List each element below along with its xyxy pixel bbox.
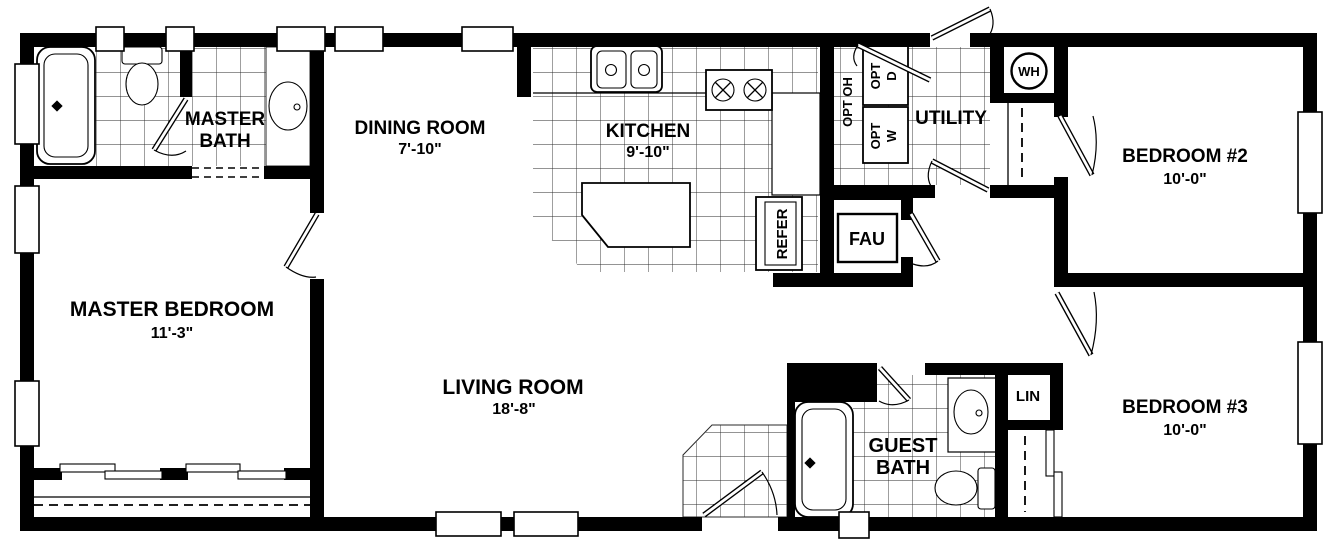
master-sink-icon (269, 82, 307, 130)
label-kitchen-dim: 9'-10" (626, 144, 669, 161)
label-master-bedroom-dim: 11'-3" (151, 325, 194, 342)
wall-kitchen-east (820, 33, 834, 287)
window-bedroom2 (1298, 112, 1322, 213)
guest-toilet-tank (978, 468, 995, 509)
guest-toilet-icon (935, 471, 977, 505)
wall-masterbedroom-east (310, 279, 324, 531)
guest-sink-icon (954, 390, 988, 434)
wall-bedroom2-west-b (1054, 177, 1068, 287)
label-master-bath-1: MASTER (185, 109, 266, 130)
label-fau: FAU (849, 229, 885, 249)
floor-plan-svg: MASTER BATH DINING ROOM 7'-10" KITCHEN 9… (0, 0, 1337, 550)
label-dining-room: DINING ROOM (355, 118, 486, 139)
window-bedroom3 (1298, 342, 1322, 444)
wall-fau-east-b (901, 257, 913, 273)
window-masterbedroom-left-2 (15, 381, 39, 446)
label-living-room: LIVING ROOM (442, 376, 583, 399)
window-masterbath-top-2 (166, 27, 194, 51)
wall-dining-kitchen-stub (517, 33, 531, 97)
label-bedroom3-dim: 10'-0" (1163, 422, 1206, 439)
masterbath-cased-opening (192, 166, 264, 179)
wall-masterbath-east (310, 33, 324, 213)
window-dining-2 (335, 27, 383, 51)
wall-guestbath-header (787, 363, 877, 402)
label-lin: LIN (1016, 388, 1040, 405)
wall-bedroom2-west-a (1054, 33, 1068, 117)
label-utility: UTILITY (915, 108, 987, 129)
door-utility-exterior-arc (988, 9, 993, 37)
label-dining-dim: 7'-10" (398, 141, 441, 158)
bedroom3-closet-slider-2 (1054, 472, 1062, 517)
wall-bottom-left (20, 517, 702, 531)
master-bathtub-inner (44, 54, 88, 157)
label-guest-bath-1: GUEST (869, 435, 938, 457)
door-bedroom2-arc (1092, 116, 1096, 175)
label-master-bath-2: BATH (199, 131, 250, 152)
label-master-bedroom: MASTER BEDROOM (70, 298, 274, 321)
kitchen-side-counter (772, 93, 820, 195)
closet-stub-c (284, 468, 312, 480)
label-opt-d-2: D (884, 71, 899, 80)
door-bedroom3-arc (1091, 292, 1096, 355)
window-kitchen (462, 27, 513, 51)
master-closet-slider-3 (186, 464, 240, 472)
label-bedroom2-dim: 10'-0" (1163, 171, 1206, 188)
label-bedroom3: BEDROOM #3 (1122, 397, 1248, 418)
window-masterbath-left (15, 64, 39, 144)
bedroom3-closet-slider-1 (1046, 430, 1054, 476)
label-refer: REFER (774, 208, 791, 259)
floor-plan: MASTER BATH DINING ROOM 7'-10" KITCHEN 9… (0, 0, 1337, 550)
wall-hall-south (773, 273, 913, 287)
door-fau-arc (913, 261, 938, 266)
wall-guestbath-north (925, 363, 1003, 375)
window-guestbath (839, 512, 869, 538)
window-masterbath-top-1 (96, 27, 124, 51)
wall-top-right (970, 33, 1317, 47)
wall-bedroom-divider (1054, 273, 1317, 287)
master-toilet-tank (122, 47, 162, 64)
label-living-dim: 18'-8" (492, 401, 535, 418)
closet-stub-a (34, 468, 62, 480)
door-masterbedroom-arc (286, 267, 316, 277)
label-opt-d-1: OPT (868, 63, 883, 90)
label-water-heater: WH (1018, 64, 1040, 79)
label-opt-w-2: W (884, 129, 899, 142)
window-living-2 (514, 512, 578, 536)
wall-lin-south (995, 420, 1063, 430)
entry-tile-floor (683, 425, 787, 517)
window-masterbedroom-left-1 (15, 186, 39, 253)
wall-fau-north (832, 190, 913, 200)
label-guest-bath-2: BATH (876, 457, 930, 479)
wall-masterbath-divider-a (34, 166, 192, 179)
kitchen-sink-drain-right (639, 65, 650, 76)
window-living-1 (436, 512, 501, 536)
master-sink-faucet-icon (294, 104, 300, 110)
label-opt-w-1: OPT (868, 123, 883, 150)
wall-lin-east (1050, 363, 1063, 430)
guest-sink-faucet-icon (976, 410, 982, 416)
window-dining-1 (277, 27, 325, 51)
master-closet-slider-4 (238, 471, 286, 479)
master-closet-slider-2 (105, 471, 162, 479)
label-kitchen: KITCHEN (606, 121, 690, 142)
kitchen-sink-drain-left (606, 65, 617, 76)
label-bedroom2: BEDROOM #2 (1122, 146, 1248, 167)
closet-stub-b (160, 468, 188, 480)
wall-guesttub-west (787, 402, 795, 517)
master-toilet-icon (126, 63, 158, 105)
label-opt-oh: OPT OH (840, 77, 855, 127)
wall-guestbath-east (995, 363, 1008, 517)
